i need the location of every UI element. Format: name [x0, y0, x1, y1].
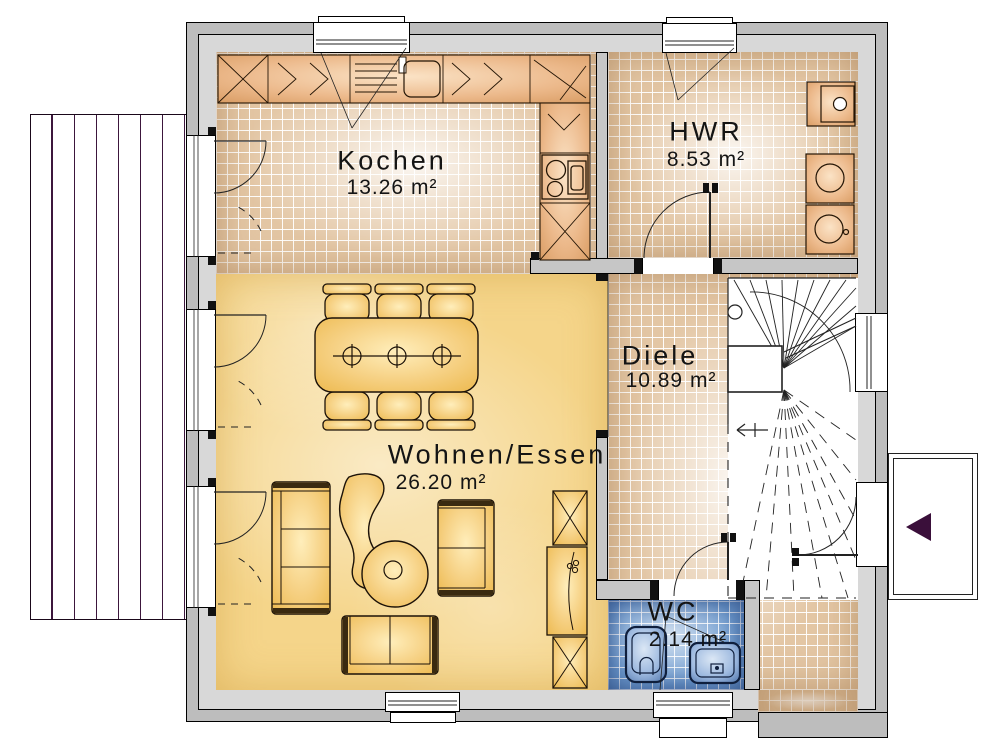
stair-area [728, 278, 858, 600]
room-area-kochen: 13.26 m² [347, 176, 438, 200]
terrace-deck [30, 114, 187, 620]
room-area-hwr: 8.53 m² [667, 148, 745, 172]
interior-wall-kitchen-hwr [596, 52, 608, 274]
door-opening-hwr [642, 258, 714, 274]
wc-wall-right [744, 580, 760, 690]
room-label-diele: Diele [622, 341, 699, 372]
terrace-door-kochen [186, 135, 216, 257]
room-label-kochen: Kochen [337, 146, 447, 177]
window-sill-wc [659, 718, 727, 738]
room-area-wohnen-essen: 26.20 m² [396, 471, 487, 495]
window-stairs [855, 313, 888, 392]
floor-jog-extension [758, 690, 858, 712]
floor-plan: Kochen 13.26 m² HWR 8.53 m² Diele 10.89 … [0, 0, 1000, 756]
terrace-door-wohnen-1 [186, 309, 216, 431]
wall-jog-bottom-right [758, 712, 888, 738]
room-label-wohnen-essen: Wohnen/Essen [388, 440, 607, 471]
terrace-door-wohnen-2 [186, 486, 216, 608]
entrance-porch-step [893, 458, 973, 595]
room-area-diele: 10.89 m² [626, 369, 717, 393]
room-label-hwr: HWR [669, 117, 742, 148]
interior-wall-hwr-diele-left [530, 258, 642, 274]
window-sill-wohnen [390, 712, 456, 723]
room-area-wc: 2.14 m² [649, 628, 727, 652]
window-wohnen [385, 692, 460, 712]
room-label-wc: WC [648, 597, 699, 628]
window-kochen [313, 22, 410, 53]
window-wc [653, 692, 733, 718]
entrance-door-opening [856, 482, 888, 567]
interior-wall-hwr-diele-right [714, 258, 858, 274]
window-hwr [662, 23, 737, 53]
